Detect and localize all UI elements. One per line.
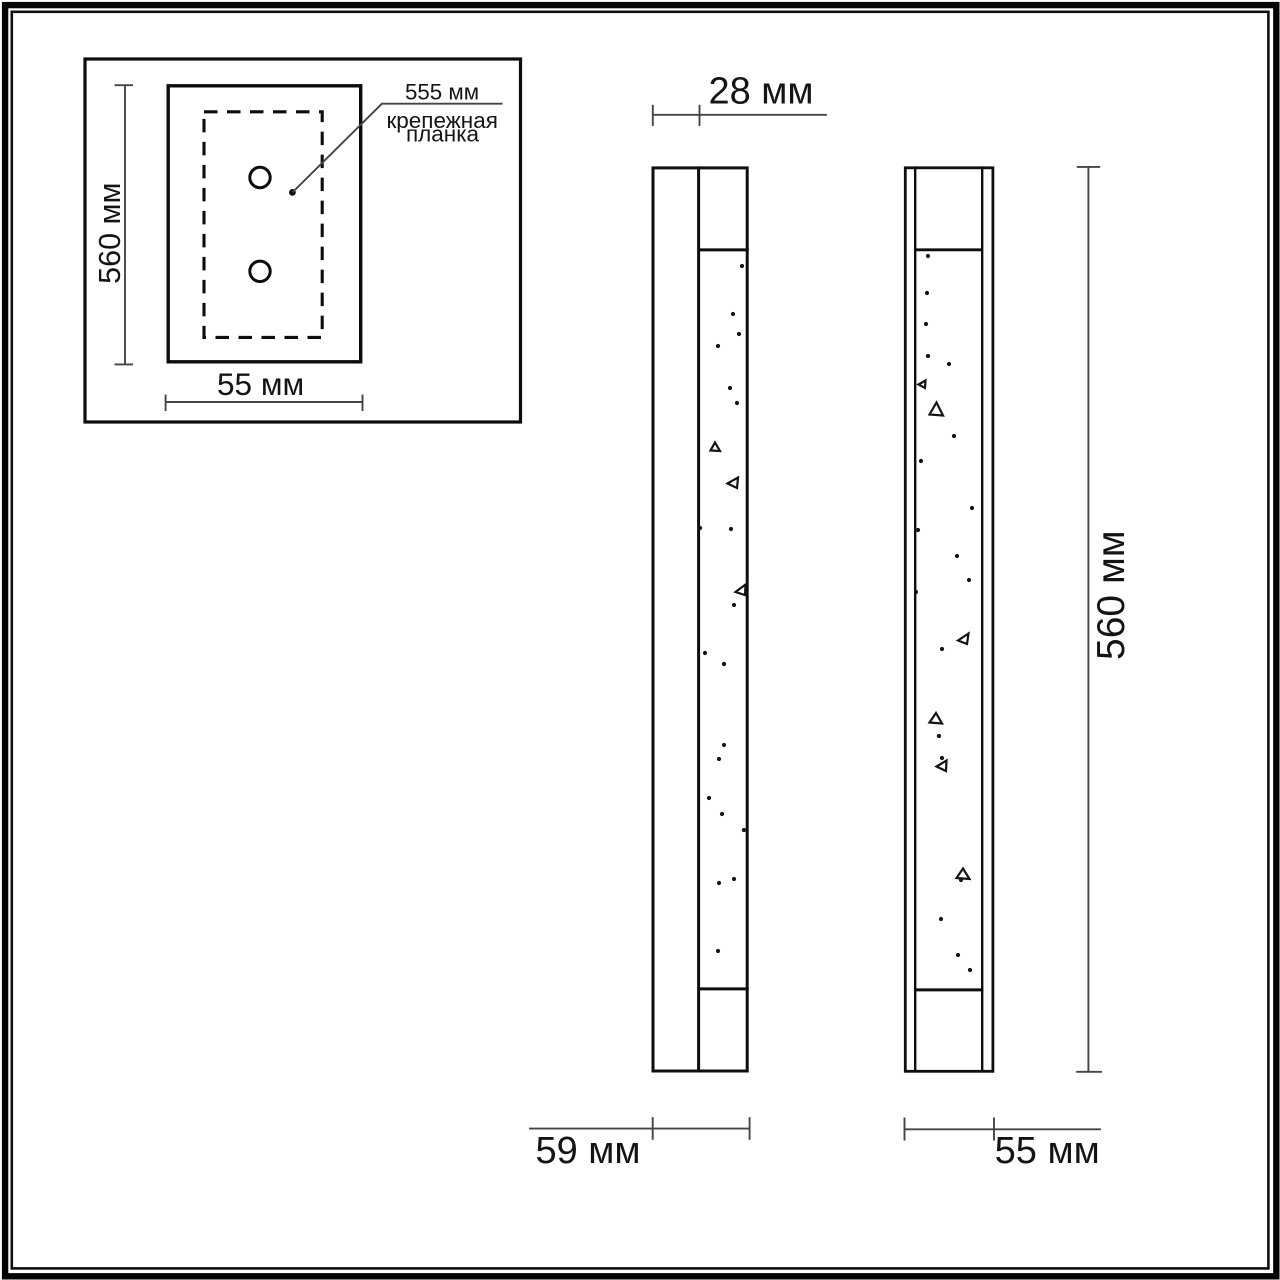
svg-text:560 мм: 560 мм [1090, 530, 1133, 660]
svg-text:560 мм: 560 мм [93, 183, 127, 284]
svg-text:55 мм: 55 мм [217, 366, 304, 402]
svg-text:28 мм: 28 мм [708, 71, 813, 113]
svg-text:55 мм: 55 мм [995, 1130, 1100, 1172]
svg-text:59 мм: 59 мм [535, 1130, 640, 1172]
svg-text:555 мм: 555 мм [405, 79, 479, 104]
svg-text:планка: планка [406, 122, 480, 147]
